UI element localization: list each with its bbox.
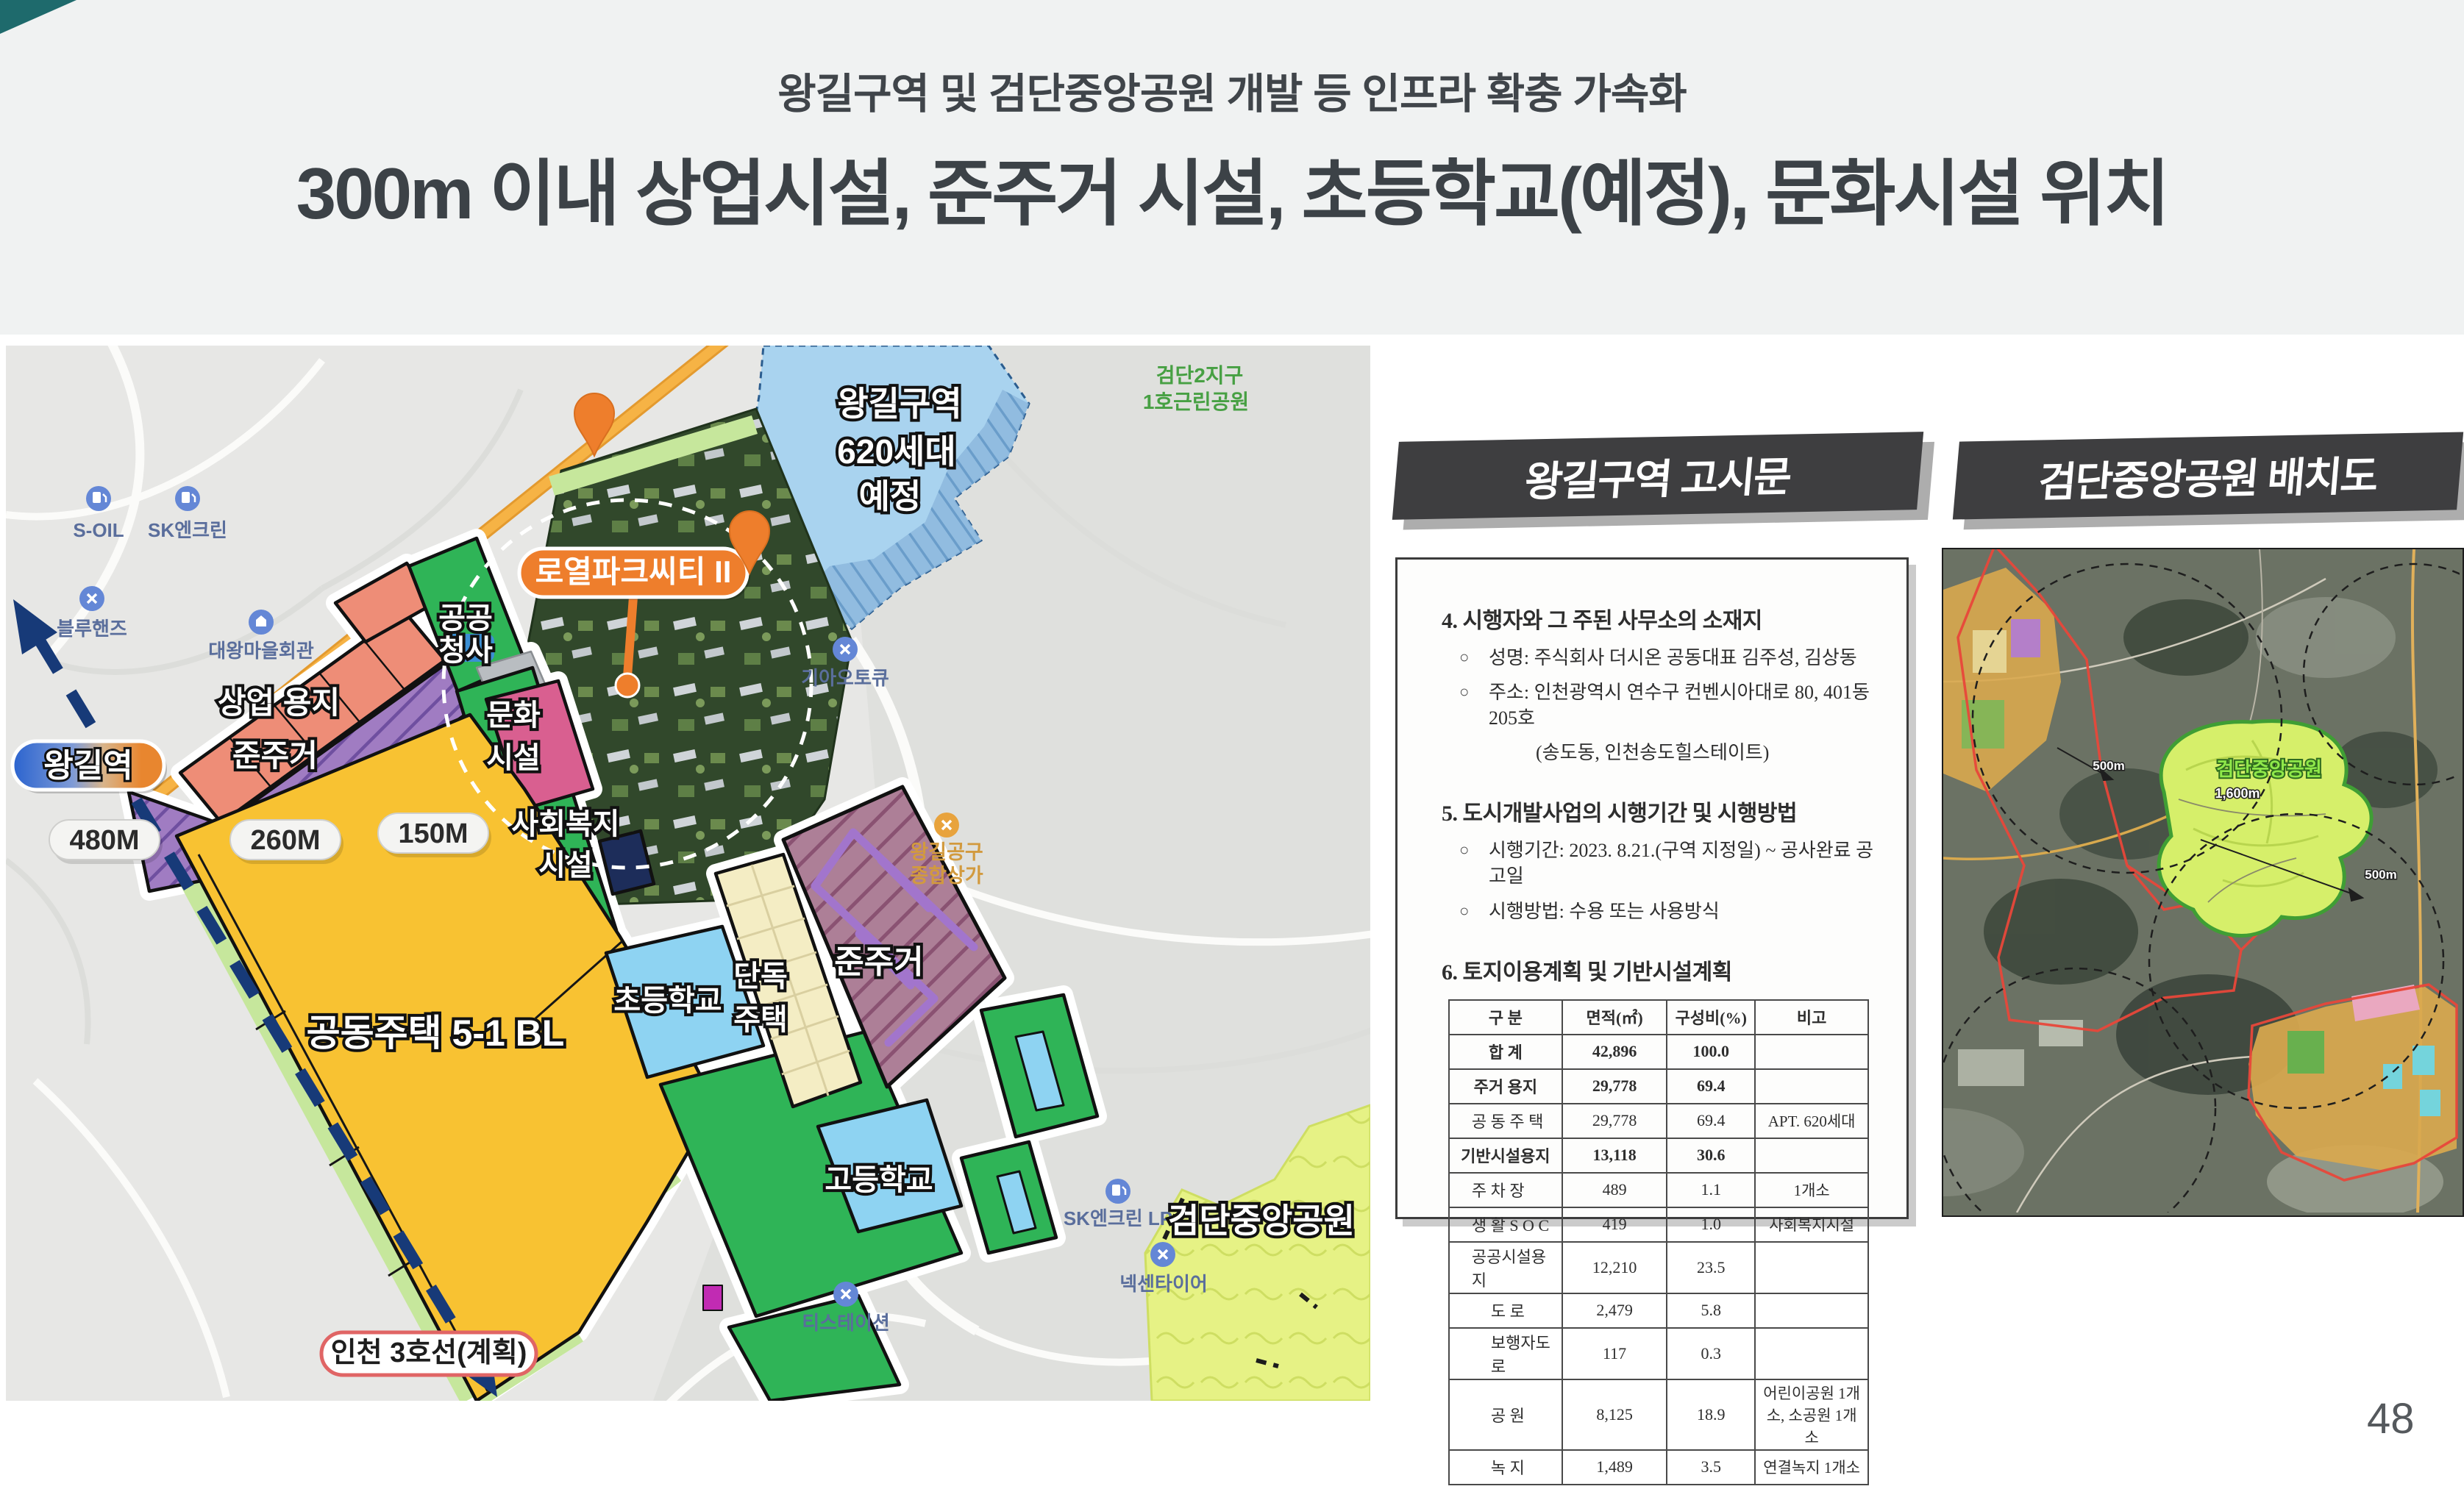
- page-number: 48: [2367, 1394, 2415, 1443]
- notice-document: 4. 시행자와 그 주된 사무소의 소재지 성명: 주식회사 더시온 공동대표 …: [1395, 557, 1909, 1219]
- notice-banner-label: 왕길구역 고시문: [1523, 443, 1793, 508]
- doc-item-continuation: (송도동, 인천송도힐스테이트): [1459, 740, 1876, 765]
- doc-section-title: 6. 토지이용계획 및 기반시설계획: [1442, 954, 1876, 986]
- slide-subtitle: 왕길구역 및 검단중앙공원 개발 등 인프라 확충 가속화: [0, 60, 2464, 121]
- poi-sk: SK엔크린: [148, 519, 227, 541]
- label-elementary: 초등학교: [613, 985, 722, 1017]
- slide: 왕길구역 및 검단중앙공원 개발 등 인프라 확충 가속화 300m 이내 상업…: [0, 0, 2464, 1489]
- table-header-cell: 면적(㎡): [1562, 1000, 1667, 1035]
- label-semi-res-small: 준주거: [232, 738, 318, 773]
- tools-shop-icon: [934, 813, 959, 838]
- poi-nexen: 넥센타이어: [1119, 1273, 1208, 1295]
- zone-magenta-small: [703, 1285, 722, 1310]
- layout-banner: 검단중앙공원 배치도: [1953, 432, 2463, 519]
- poi-daewang: 대왕마을회관: [208, 640, 314, 662]
- label-public-2: 청사: [438, 635, 493, 667]
- station-badge-label: 왕길역: [43, 748, 132, 784]
- aerial-distance-2: 1,600m: [2215, 786, 2260, 801]
- poi-sklp: SK엔크린 LP: [1064, 1207, 1172, 1229]
- planned-zone-label-2: 620세대: [837, 432, 955, 471]
- doc-section-title: 4. 시행자와 그 주된 사무소의 소재지: [1442, 602, 1876, 635]
- poi-soil: S-OIL: [73, 519, 124, 541]
- doc-section-title: 5. 도시개발사업의 시행기간 및 시행방법: [1442, 795, 1876, 827]
- notice-banner: 왕길구역 고시문: [1392, 432, 1923, 520]
- gas-station-icon: [175, 486, 200, 511]
- poi-geomdan2-1: 검단2지구: [1156, 364, 1244, 387]
- distance-480: 480M: [69, 825, 139, 856]
- label-apartment: 공동주택 5-1 BL: [307, 1013, 565, 1054]
- label-welfare-1: 사회복지: [511, 808, 619, 840]
- label-detached-1: 단독: [733, 960, 788, 993]
- poi-kia: 기아오토큐: [801, 667, 889, 689]
- repair-shop-icon: [79, 586, 104, 611]
- distance-150: 150M: [398, 818, 468, 849]
- label-central-park: 검단중앙공원: [1168, 1201, 1355, 1240]
- subway-label-pill: 인천 3호선(계획): [321, 1332, 536, 1375]
- table-row: 기반시설용지13,11830.6: [1449, 1138, 1868, 1173]
- page-title: 300m 이내 상업시설, 준주거 시설, 초등학교(예정), 문화시설 위치: [0, 135, 2464, 240]
- planned-zone-label-1: 왕길구역: [837, 385, 961, 423]
- doc-section-5: 5. 도시개발사업의 시행기간 및 시행방법 시행기간: 2023. 8.21.…: [1442, 795, 1876, 924]
- table-header-row: 구 분면적(㎡)구성비(%)비고: [1449, 1000, 1868, 1035]
- table-row: 도 로2,4795.8: [1449, 1293, 1868, 1328]
- doc-section-4: 4. 시행자와 그 주된 사무소의 소재지 성명: 주식회사 더시온 공동대표 …: [1442, 602, 1876, 765]
- repair-shop-icon: [833, 637, 858, 662]
- table-row: 보행자도로1170.3: [1449, 1328, 1868, 1379]
- table-row: 주거 용지29,77869.4: [1449, 1069, 1868, 1104]
- poi-bluehands: 블루핸즈: [57, 618, 127, 640]
- subway-label: 인천 3호선(계획): [331, 1338, 527, 1368]
- development-map-svg: 왕길구역 620세대 예정: [6, 346, 1370, 1401]
- poi-geomdan2-2: 1호근린공원: [1143, 390, 1249, 413]
- repair-shop-icon: [1150, 1242, 1175, 1267]
- land-use-table-body: 합 계42,896100.0주거 용지29,77869.4공 동 주 택29,7…: [1449, 1035, 1868, 1485]
- label-culture-1: 문화: [486, 699, 541, 732]
- label-semi-res-large: 준주거: [834, 944, 923, 980]
- gas-station-icon: [1105, 1179, 1130, 1204]
- layout-banner-label: 검단중앙공원 배치도: [2036, 443, 2379, 509]
- doc-item: 시행기간: 2023. 8.21.(구역 지정일) ~ 공사완료 공고일: [1459, 838, 1876, 889]
- gas-station-icon: [86, 486, 111, 511]
- planned-zone-label-3: 예정: [859, 477, 922, 515]
- label-public-1: 공공: [438, 602, 493, 635]
- project-badge-label: 로열파크씨티 II: [535, 554, 732, 589]
- label-high-school: 고등학교: [825, 1164, 933, 1196]
- poi-tools-2: 종합상가: [910, 865, 983, 887]
- table-row: 공공시설용지12,21023.5: [1449, 1242, 1868, 1293]
- land-use-table: 구 분면적(㎡)구성비(%)비고 합 계42,896100.0주거 용지29,7…: [1448, 999, 1869, 1485]
- distance-pills: 480M 260M 150M: [49, 813, 491, 864]
- park-layout-svg: 검단중앙공원 500m 1,600m 500m: [1943, 549, 2460, 1213]
- distance-260: 260M: [250, 825, 320, 856]
- poi-tools-1: 왕길공구: [910, 841, 983, 863]
- label-detached-2: 주택: [733, 1004, 788, 1036]
- poi-tstation: 티스테이션: [802, 1312, 890, 1334]
- aerial-park-label: 검단중앙공원: [2216, 758, 2322, 780]
- park-layout-map: 검단중앙공원 500m 1,600m 500m: [1942, 548, 2464, 1217]
- doc-section-6: 6. 토지이용계획 및 기반시설계획: [1442, 954, 1876, 986]
- table-row: 공 동 주 택29,77869.4APT. 620세대: [1449, 1104, 1868, 1138]
- doc-item: 시행방법: 수용 또는 사용방식: [1459, 899, 1876, 924]
- table-header-cell: 구 분: [1449, 1000, 1562, 1035]
- aerial-distance-1: 500m: [2093, 759, 2124, 773]
- doc-item: 성명: 주식회사 더시온 공동대표 김주성, 김상동: [1459, 645, 1876, 671]
- table-header-cell: 구성비(%): [1667, 1000, 1755, 1035]
- corner-decoration: [0, 0, 76, 34]
- doc-item: 주소: 인천광역시 연수구 컨벤시아대로 80, 401동205호: [1459, 679, 1876, 731]
- hall-icon: [249, 610, 274, 635]
- table-row: 주 차 장4891.11개소: [1449, 1173, 1868, 1207]
- table-row: 합 계42,896100.0: [1449, 1035, 1868, 1069]
- repair-shop-icon: [833, 1282, 858, 1307]
- aerial-distance-3: 500m: [2365, 868, 2396, 882]
- label-commercial: 상업 용지: [218, 685, 340, 720]
- label-culture-2: 시설: [486, 742, 541, 774]
- development-map: 왕길구역 620세대 예정: [6, 346, 1370, 1401]
- label-welfare-2: 시설: [538, 849, 593, 882]
- table-row: 공 원8,12518.9어린이공원 1개소, 소공원 1개소: [1449, 1379, 1868, 1450]
- table-header-cell: 비고: [1755, 1000, 1868, 1035]
- station-badge: 왕길역: [13, 741, 167, 793]
- table-row: 녹 지1,4893.5연결녹지 1개소: [1449, 1450, 1868, 1485]
- table-row: 생 활 S O C4191.0사회복지시설: [1449, 1207, 1868, 1242]
